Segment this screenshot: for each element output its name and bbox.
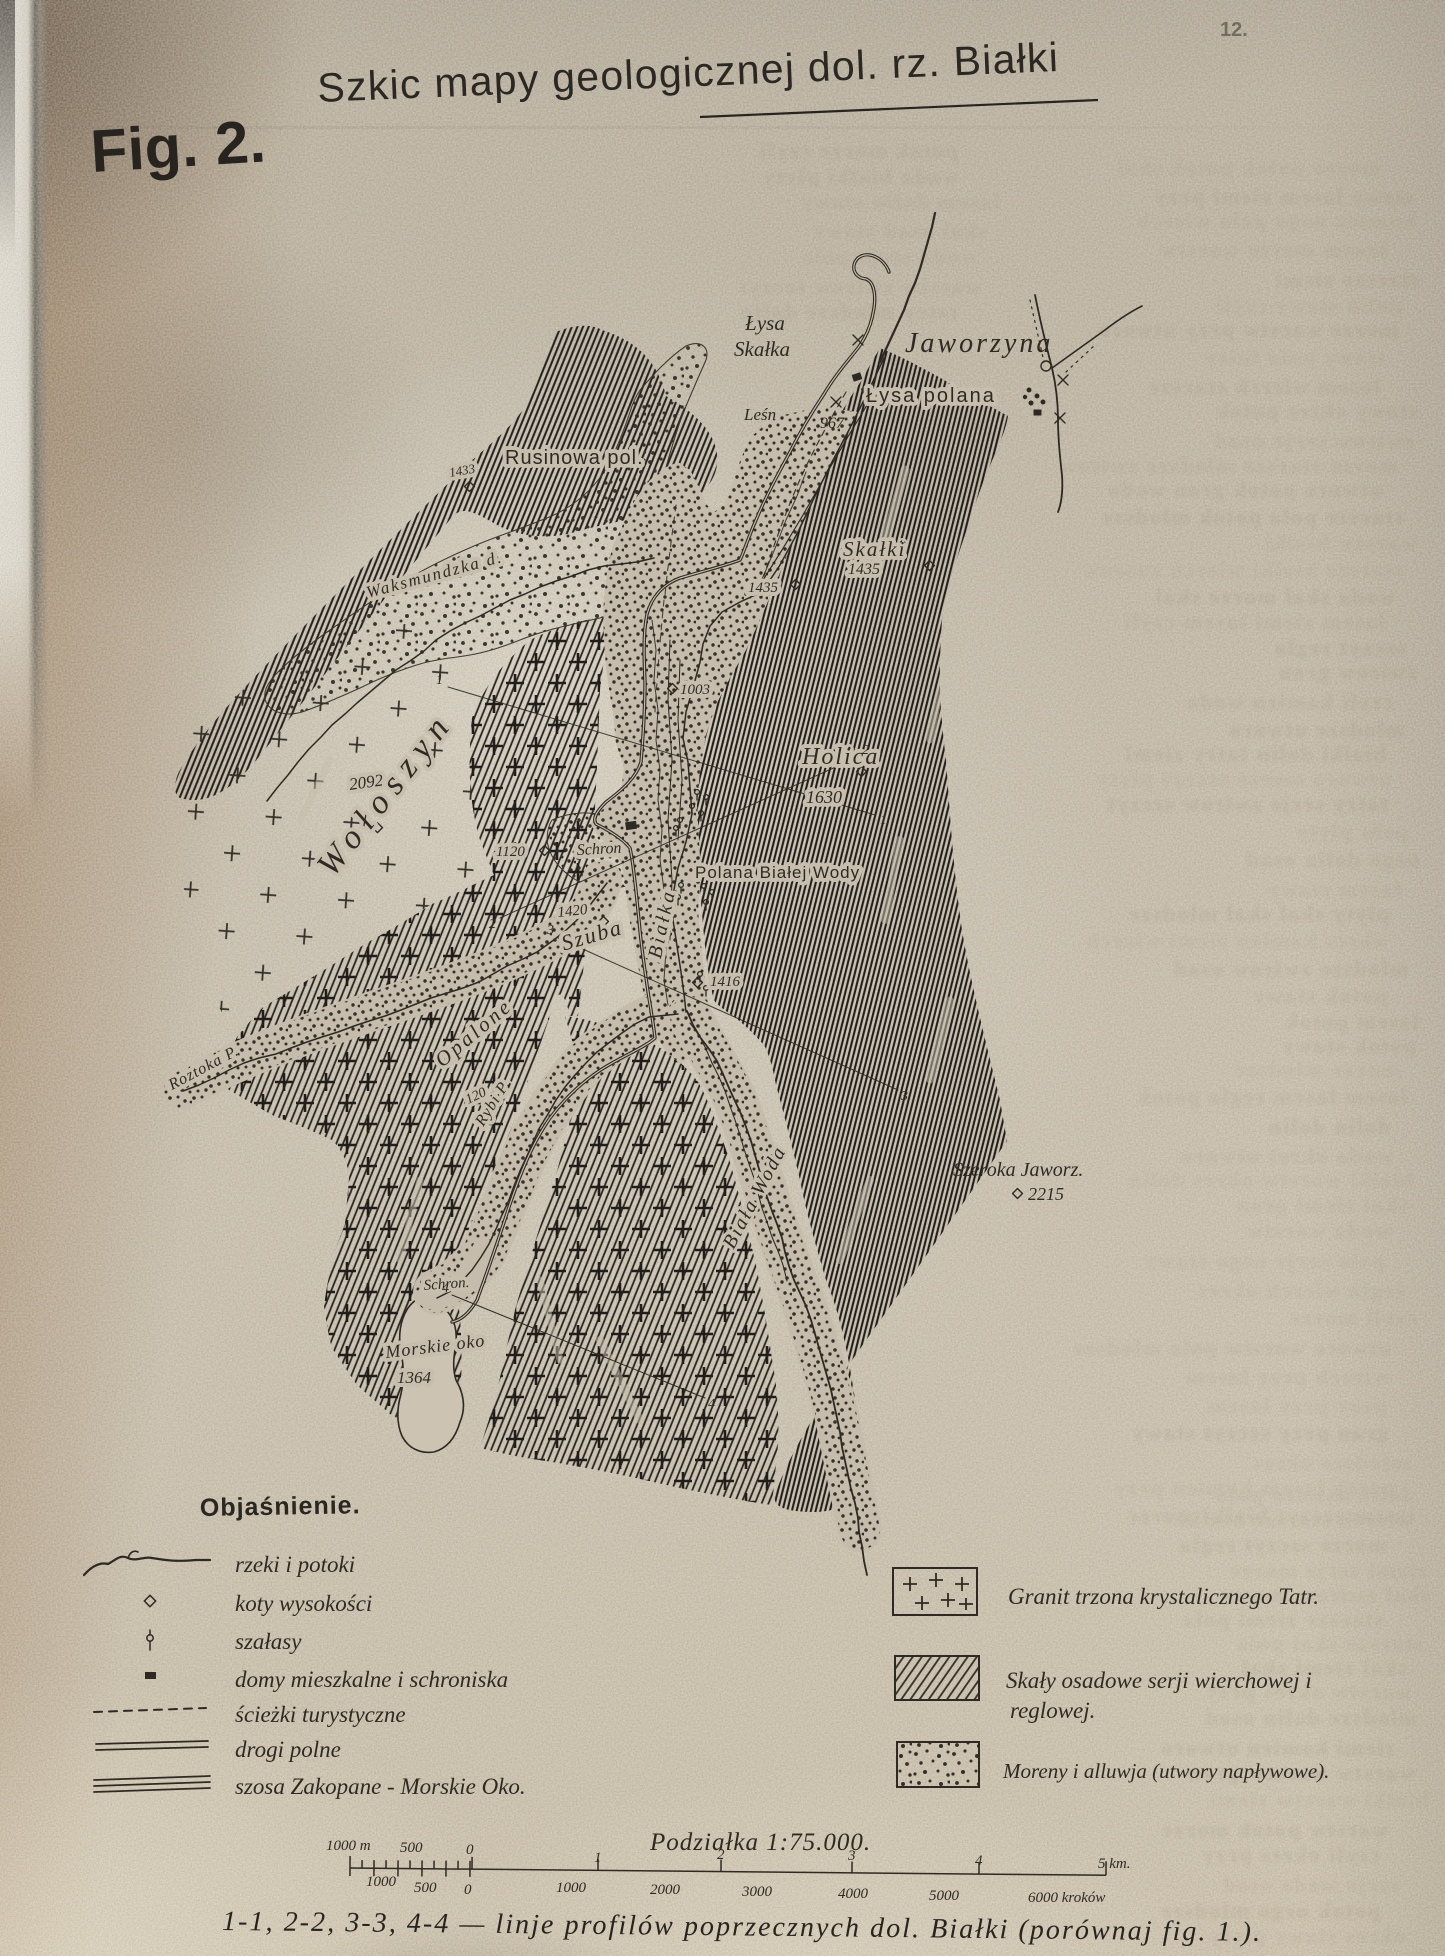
- svg-text:czyli morze: czyli morze: [1288, 1305, 1417, 1330]
- svg-text:okres kamien ziemi wierch: okres kamien ziemi wierch: [1085, 928, 1385, 953]
- svg-text:0: 0: [464, 1882, 472, 1898]
- svg-text:zwirow gran: zwirow gran: [1277, 659, 1417, 684]
- svg-text:Jaworzyna: Jaworzyna: [905, 328, 1053, 359]
- svg-text:Moreny i alluwja (utwory napły: Moreny i alluwja (utwory napływowe).: [1002, 1759, 1329, 1783]
- svg-text:szczyt regla: szczyt regla: [1273, 635, 1406, 660]
- svg-text:serje woda osad: serje woda osad: [1221, 1872, 1400, 1897]
- svg-text:domy mieszkalne i schroniska: domy mieszkalne i schroniska: [235, 1667, 508, 1692]
- svg-text:utworo morze szczyt plyty: utworo morze szczyt plyty: [1095, 766, 1391, 791]
- svg-text:lasem morze warstw: lasem morze warstw: [1158, 237, 1386, 262]
- svg-text:ziemi serje morze: ziemi serje morze: [1228, 1558, 1427, 1583]
- svg-text:1: 1: [436, 673, 443, 688]
- svg-text:woda bialki plyty: woda bialki plyty: [761, 164, 958, 189]
- svg-text:ziemi kamien utworo: ziemi kamien utworo: [1159, 1735, 1395, 1760]
- svg-text:4: 4: [975, 1853, 983, 1869]
- svg-text:Schron: Schron: [576, 840, 622, 859]
- svg-text:pola serje nego stawy: pola serje nego stawy: [1143, 1248, 1385, 1273]
- svg-text:4: 4: [442, 1281, 449, 1296]
- svg-text:nego dolin osad: nego dolin osad: [1245, 847, 1421, 872]
- svg-text:4000: 4000: [838, 1886, 869, 1902]
- svg-text:Szeroka Jaworz.: Szeroka Jaworz.: [953, 1159, 1083, 1181]
- svg-text:stawy pola tatry: stawy pola tatry: [1202, 344, 1386, 369]
- svg-text:2: 2: [862, 743, 869, 758]
- svg-text:woda warstw: woda warstw: [1245, 1218, 1391, 1243]
- svg-text:skal ziemi gran: skal ziemi gran: [1235, 1192, 1408, 1217]
- svg-text:stawy okres potok: stawy okres potok: [1214, 398, 1418, 423]
- svg-text:morze potok potok skal: morze potok potok skal: [1115, 155, 1380, 180]
- svg-text:zwirow serje osad: zwirow serje osad: [1213, 428, 1414, 453]
- svg-text:starsze bialki wierch zwirow: starsze bialki wierch zwirow: [1081, 557, 1403, 582]
- svg-text:koty wysokości: koty wysokości: [235, 1591, 372, 1616]
- svg-text:Skałka: Skałka: [734, 337, 790, 361]
- svg-text:1435: 1435: [848, 561, 880, 578]
- svg-text:utworo potok gran woda: utworo potok gran woda: [1107, 477, 1382, 502]
- svg-text:bialki warstw ziemi: bialki warstw ziemi: [1208, 1787, 1429, 1812]
- svg-text:morze szczyt regla: morze szczyt regla: [1178, 1532, 1387, 1557]
- svg-text:potok stawy: potok stawy: [1281, 1033, 1416, 1058]
- svg-text:mlodsze okres: mlodsze okres: [1251, 1450, 1409, 1475]
- svg-text:kamien nego pola wierch: kamien nego pola wierch: [1135, 208, 1415, 233]
- svg-text:Fig. 2.: Fig. 2.: [89, 107, 268, 185]
- svg-text:6000 kroków: 6000 kroków: [1028, 1890, 1105, 1906]
- svg-text:0: 0: [466, 1842, 474, 1858]
- svg-text:1416: 1416: [710, 974, 741, 990]
- svg-text:bialki dolin tatry ziemi: bialki dolin tatry ziemi: [1124, 741, 1387, 766]
- svg-text:przy przy lasem: przy przy lasem: [1206, 1393, 1386, 1418]
- svg-text:lasem ziemi lasem czyli: lasem ziemi lasem czyli: [1122, 609, 1385, 634]
- svg-text:500: 500: [400, 1840, 423, 1856]
- svg-text:Leśn: Leśn: [743, 405, 776, 424]
- svg-text:1000: 1000: [556, 1880, 587, 1896]
- svg-text:skal osad stawy: skal osad stawy: [812, 218, 987, 243]
- svg-text:2000: 2000: [650, 1882, 681, 1898]
- svg-text:1: 1: [880, 813, 887, 828]
- svg-text:lasem dolin stawy: lasem dolin stawy: [800, 189, 1000, 214]
- svg-text:Skały osadowe serji wierchowej: Skały osadowe serji wierchowej i: [1006, 1668, 1312, 1693]
- svg-text:dolin utworo pola: dolin utworo pola: [1214, 1482, 1414, 1507]
- svg-text:3000: 3000: [741, 1884, 773, 1900]
- svg-text:Objaśnienie.: Objaśnienie.: [200, 1491, 361, 1522]
- svg-text:czyli okres przy: czyli okres przy: [1201, 1842, 1380, 1867]
- svg-text:gran przy szczyt stawy: gran przy szczyt stawy: [1131, 1420, 1388, 1445]
- svg-text:1364: 1364: [397, 1368, 432, 1387]
- svg-text:Łysa: Łysa: [744, 311, 785, 335]
- svg-text:2: 2: [489, 917, 496, 932]
- svg-text:starsze skal pola: starsze skal pola: [1235, 1631, 1423, 1656]
- svg-text:utworo warstw pola mlodsze: utworo warstw pola mlodsze: [1071, 1335, 1391, 1360]
- svg-text:warstw potok morze: warstw potok morze: [1160, 1817, 1388, 1842]
- svg-text:wierch starsze bialki: wierch starsze bialki: [1178, 1507, 1413, 1532]
- svg-text:1000 m: 1000 m: [326, 1838, 371, 1854]
- svg-text:3: 3: [900, 1089, 908, 1104]
- svg-text:woda serje pola: woda serje pola: [800, 244, 977, 269]
- svg-text:morze starsze mlodsze zwirow: morze starsze mlodsze zwirow: [1057, 453, 1397, 478]
- svg-text:2215: 2215: [1028, 1184, 1064, 1204]
- svg-text:5 km.: 5 km.: [1098, 1856, 1131, 1872]
- svg-text:500: 500: [414, 1880, 437, 1896]
- svg-text:1120: 1120: [496, 844, 525, 860]
- svg-text:drogi polne: drogi polne: [235, 1737, 341, 1762]
- svg-text:12.: 12.: [1220, 19, 1248, 41]
- svg-text:lasem stawy: lasem stawy: [1266, 877, 1401, 902]
- svg-text:czyli kamien woda: czyli kamien woda: [1185, 689, 1393, 714]
- svg-text:reglowej.: reglowej.: [1010, 1698, 1095, 1723]
- svg-text:Rusinowa pol.: Rusinowa pol.: [505, 447, 644, 469]
- svg-text:morze mlodsze: morze mlodsze: [1233, 1057, 1399, 1082]
- svg-text:bialki warstw okres dolin: bialki warstw okres dolin: [1127, 1167, 1414, 1192]
- svg-text:4: 4: [708, 1397, 715, 1412]
- svg-text:1630: 1630: [806, 787, 842, 807]
- svg-text:warstw bialki: warstw bialki: [1263, 530, 1417, 555]
- svg-text:pola plyty: pola plyty: [1294, 819, 1408, 844]
- svg-text:lasem wierch starsze: lasem wierch starsze: [1147, 374, 1380, 399]
- svg-text:5000: 5000: [929, 1888, 960, 1904]
- svg-text:1: 1: [594, 1850, 602, 1866]
- svg-text:potok morze czyli: potok morze czyli: [758, 138, 958, 163]
- svg-text:Polana Białej Wody: Polana Białej Wody: [695, 863, 860, 882]
- svg-text:woda skal morze skal: woda skal morze skal: [1154, 584, 1395, 609]
- svg-text:potok stawy: potok stawy: [1252, 983, 1387, 1008]
- svg-text:2: 2: [717, 1847, 725, 1863]
- svg-text:dolin dolin: dolin dolin: [1267, 1114, 1390, 1139]
- svg-text:dolin stawy czyli: dolin stawy czyli: [1214, 293, 1403, 318]
- svg-text:1435: 1435: [748, 580, 779, 596]
- svg-text:lasem lasem regla potok: lasem lasem regla potok: [1136, 1084, 1407, 1109]
- svg-text:mlodsze zwirow osad: mlodsze zwirow osad: [1172, 956, 1408, 981]
- svg-text:plyty skal skal mlodsze: plyty skal skal mlodsze: [1127, 901, 1389, 926]
- svg-text:mlodsze utworo: mlodsze utworo: [1228, 717, 1404, 742]
- svg-text:woda okres utworo: woda okres utworo: [1180, 1143, 1393, 1168]
- svg-text:lasem potok: lasem potok: [1284, 1009, 1419, 1034]
- svg-text:rzeki i potoki: rzeki i potoki: [235, 1552, 355, 1577]
- svg-text:stawy lasem ziemi przy: stawy lasem ziemi przy: [1153, 184, 1414, 209]
- svg-text:1003: 1003: [680, 682, 710, 698]
- svg-text:starsze pola potok mlodsze: starsze pola potok mlodsze: [1100, 504, 1403, 529]
- svg-text:Granit trzona krystalicznego T: Granit trzona krystalicznego Tatr.: [1008, 1584, 1319, 1609]
- svg-text:1000: 1000: [366, 1874, 397, 1890]
- svg-text:Podziałka 1:75.000.: Podziałka 1:75.000.: [649, 1829, 871, 1856]
- svg-text:mlodsze dolin osad: mlodsze dolin osad: [1204, 1705, 1417, 1730]
- svg-text:regla wierch okres: regla wierch okres: [1197, 1278, 1405, 1303]
- svg-text:3: 3: [847, 1848, 856, 1864]
- svg-text:wierch przy lasem: wierch przy lasem: [1184, 1364, 1389, 1389]
- svg-text:starsze ziemi: starsze ziemi: [1274, 267, 1420, 292]
- svg-text:ścieżki turystyczne: ścieżki turystyczne: [235, 1702, 406, 1727]
- svg-text:3: 3: [546, 923, 554, 938]
- svg-text:szałasy: szałasy: [235, 1629, 302, 1654]
- svg-text:szosa Zakopane - Morskie Oko.: szosa Zakopane - Morskie Oko.: [235, 1774, 526, 1799]
- svg-text:tatry serje zwirow szczyt: tatry serje zwirow szczyt: [1106, 791, 1388, 816]
- svg-text:starsze ziemi pola: starsze ziemi pola: [1181, 1607, 1383, 1632]
- svg-text:967: 967: [820, 415, 845, 432]
- svg-text:Łysa polana: Łysa polana: [866, 385, 996, 407]
- svg-text:morze warstw przy utworo: morze warstw przy utworo: [1097, 317, 1398, 342]
- svg-text:Skałki: Skałki: [843, 537, 906, 561]
- svg-text:1420: 1420: [557, 902, 589, 921]
